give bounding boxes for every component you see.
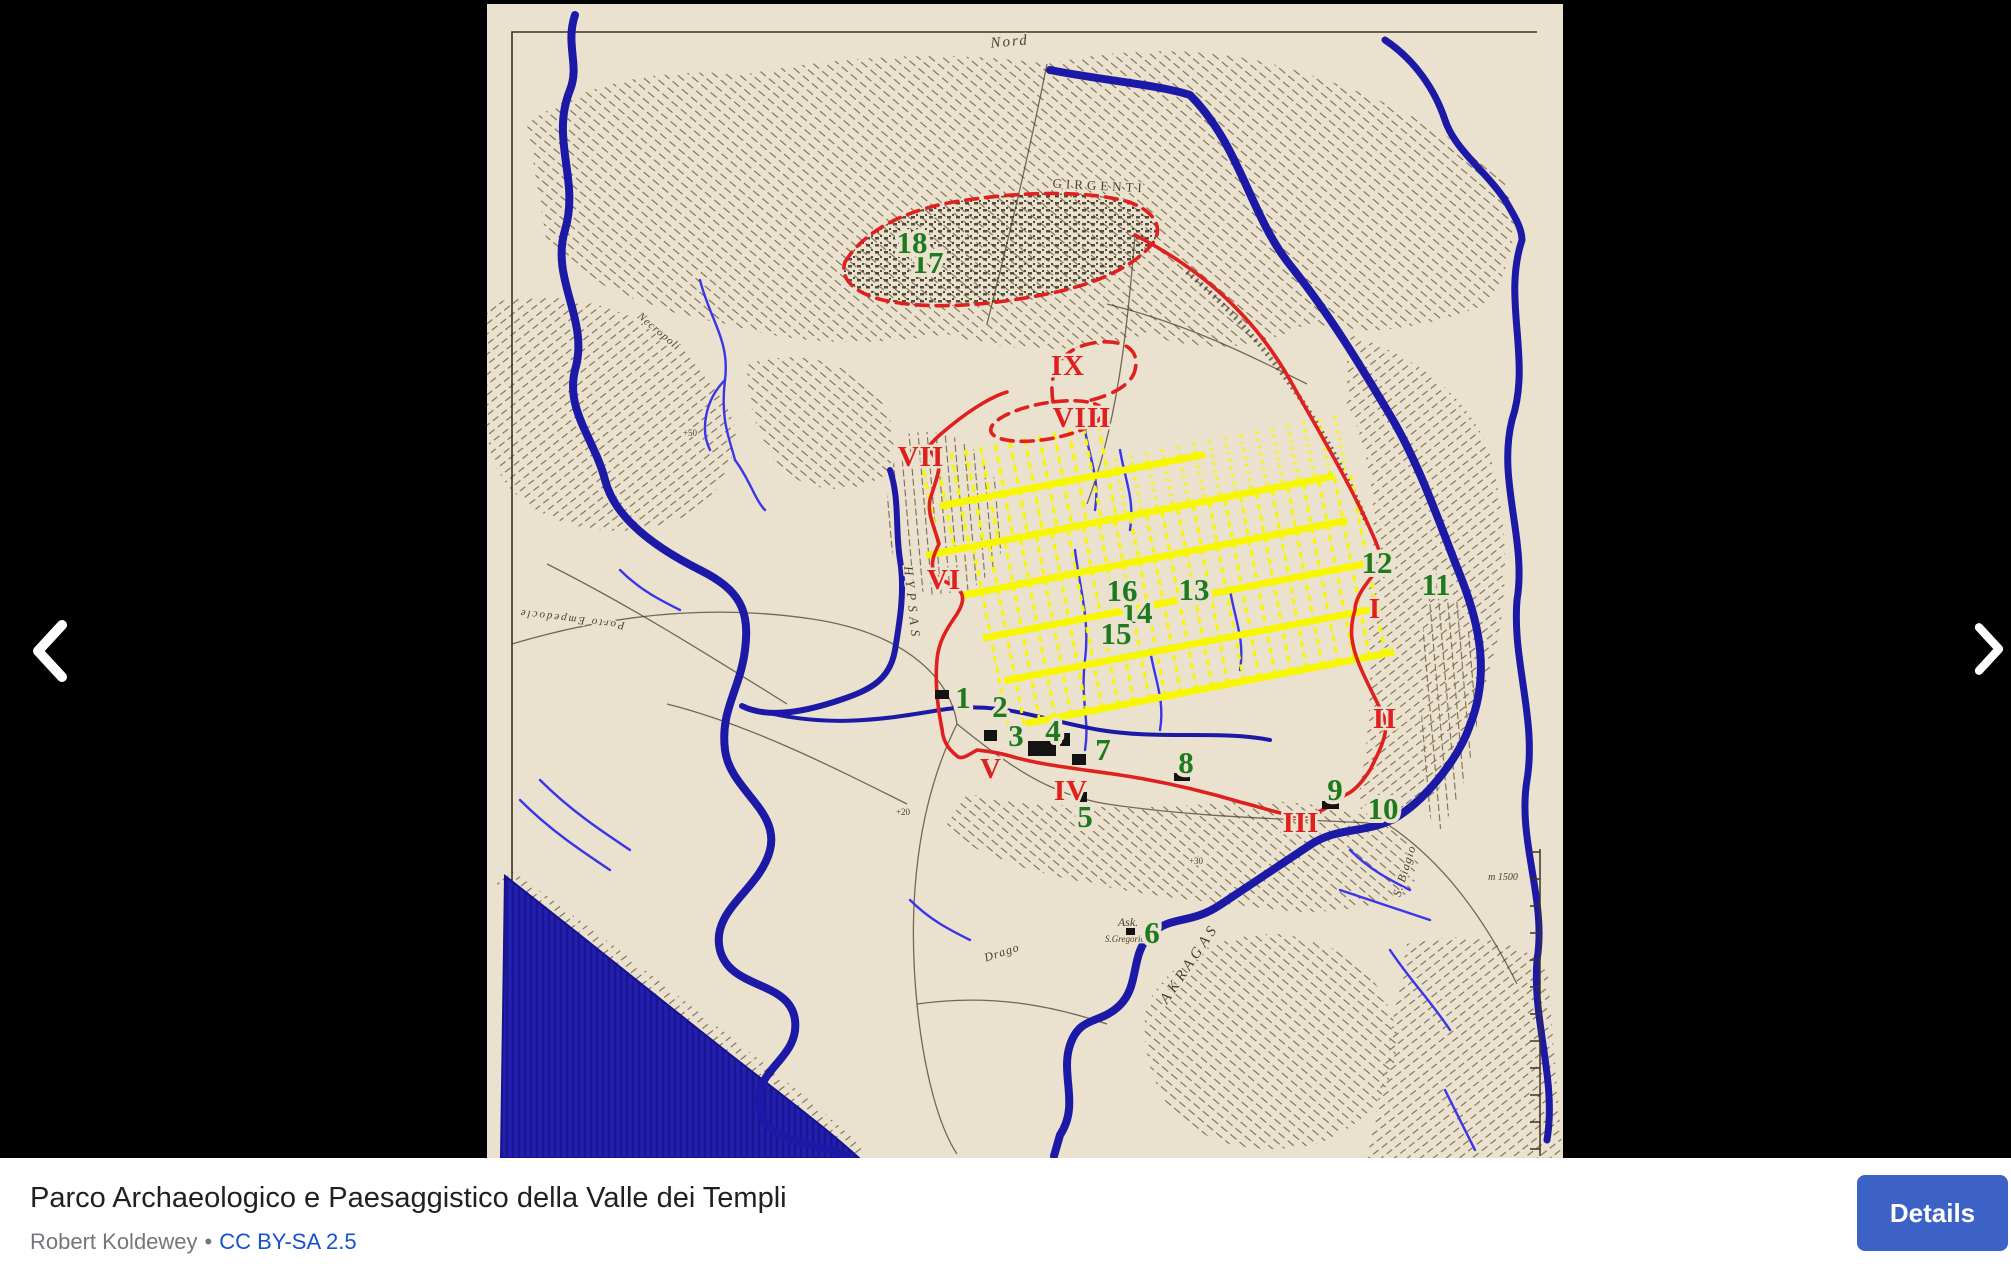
svg-text:V: V — [980, 753, 1002, 785]
svg-text:Nord: Nord — [989, 32, 1030, 51]
svg-text:+30: +30 — [1189, 856, 1204, 866]
details-button[interactable]: Details — [1857, 1175, 2008, 1251]
svg-text:VI: VI — [927, 564, 961, 596]
svg-text:III: III — [1283, 807, 1320, 839]
svg-text:II: II — [1373, 703, 1398, 735]
map-image: NordGIRGENTIHYPSASAKRAGASDragoAsk.S.Greg… — [487, 4, 1563, 1158]
attribution: Robert Koldewey•CC BY-SA 2.5 — [30, 1229, 1981, 1255]
svg-text:Ask.: Ask. — [1117, 915, 1138, 929]
svg-text:+20: +20 — [896, 807, 911, 817]
chevron-left-icon — [26, 618, 74, 684]
next-button[interactable] — [1969, 616, 2009, 682]
svg-text:+50: +50 — [683, 428, 698, 438]
svg-text:2: 2 — [992, 689, 1008, 724]
svg-text:10: 10 — [1368, 791, 1399, 826]
svg-text:11: 11 — [1421, 567, 1450, 602]
svg-text:3: 3 — [1008, 718, 1024, 753]
svg-text:13: 13 — [1179, 572, 1210, 607]
license-link[interactable]: CC BY-SA 2.5 — [219, 1229, 356, 1254]
svg-text:I: I — [1369, 593, 1381, 625]
svg-text:7: 7 — [1095, 732, 1111, 767]
svg-text:VII: VII — [898, 441, 945, 473]
svg-text:1: 1 — [955, 680, 971, 715]
svg-text:15: 15 — [1101, 616, 1132, 651]
svg-text:16: 16 — [1107, 573, 1138, 608]
chevron-right-icon — [1969, 616, 2009, 682]
svg-text:m 1500: m 1500 — [1488, 872, 1518, 883]
svg-text:IV: IV — [1054, 775, 1088, 807]
svg-text:4: 4 — [1045, 713, 1061, 748]
svg-text:VIII: VIII — [1053, 402, 1112, 434]
svg-text:S.Gregorio: S.Gregorio — [1105, 934, 1145, 944]
svg-text:12: 12 — [1362, 545, 1393, 580]
separator-dot: • — [205, 1229, 213, 1254]
svg-text:6: 6 — [1144, 915, 1160, 950]
image-viewer: NordGIRGENTIHYPSASAKRAGASDragoAsk.S.Greg… — [0, 0, 2011, 1286]
author-name: Robert Koldewey — [30, 1229, 198, 1254]
image-title: Parco Archaeologico e Paesaggistico dell… — [30, 1180, 1981, 1216]
svg-text:8: 8 — [1178, 745, 1194, 780]
svg-text:IX: IX — [1051, 350, 1085, 382]
prev-button[interactable] — [26, 618, 74, 684]
caption-bar: Parco Archaeologico e Paesaggistico dell… — [0, 1158, 2011, 1286]
svg-text:18: 18 — [897, 225, 928, 260]
svg-text:9: 9 — [1327, 772, 1343, 807]
